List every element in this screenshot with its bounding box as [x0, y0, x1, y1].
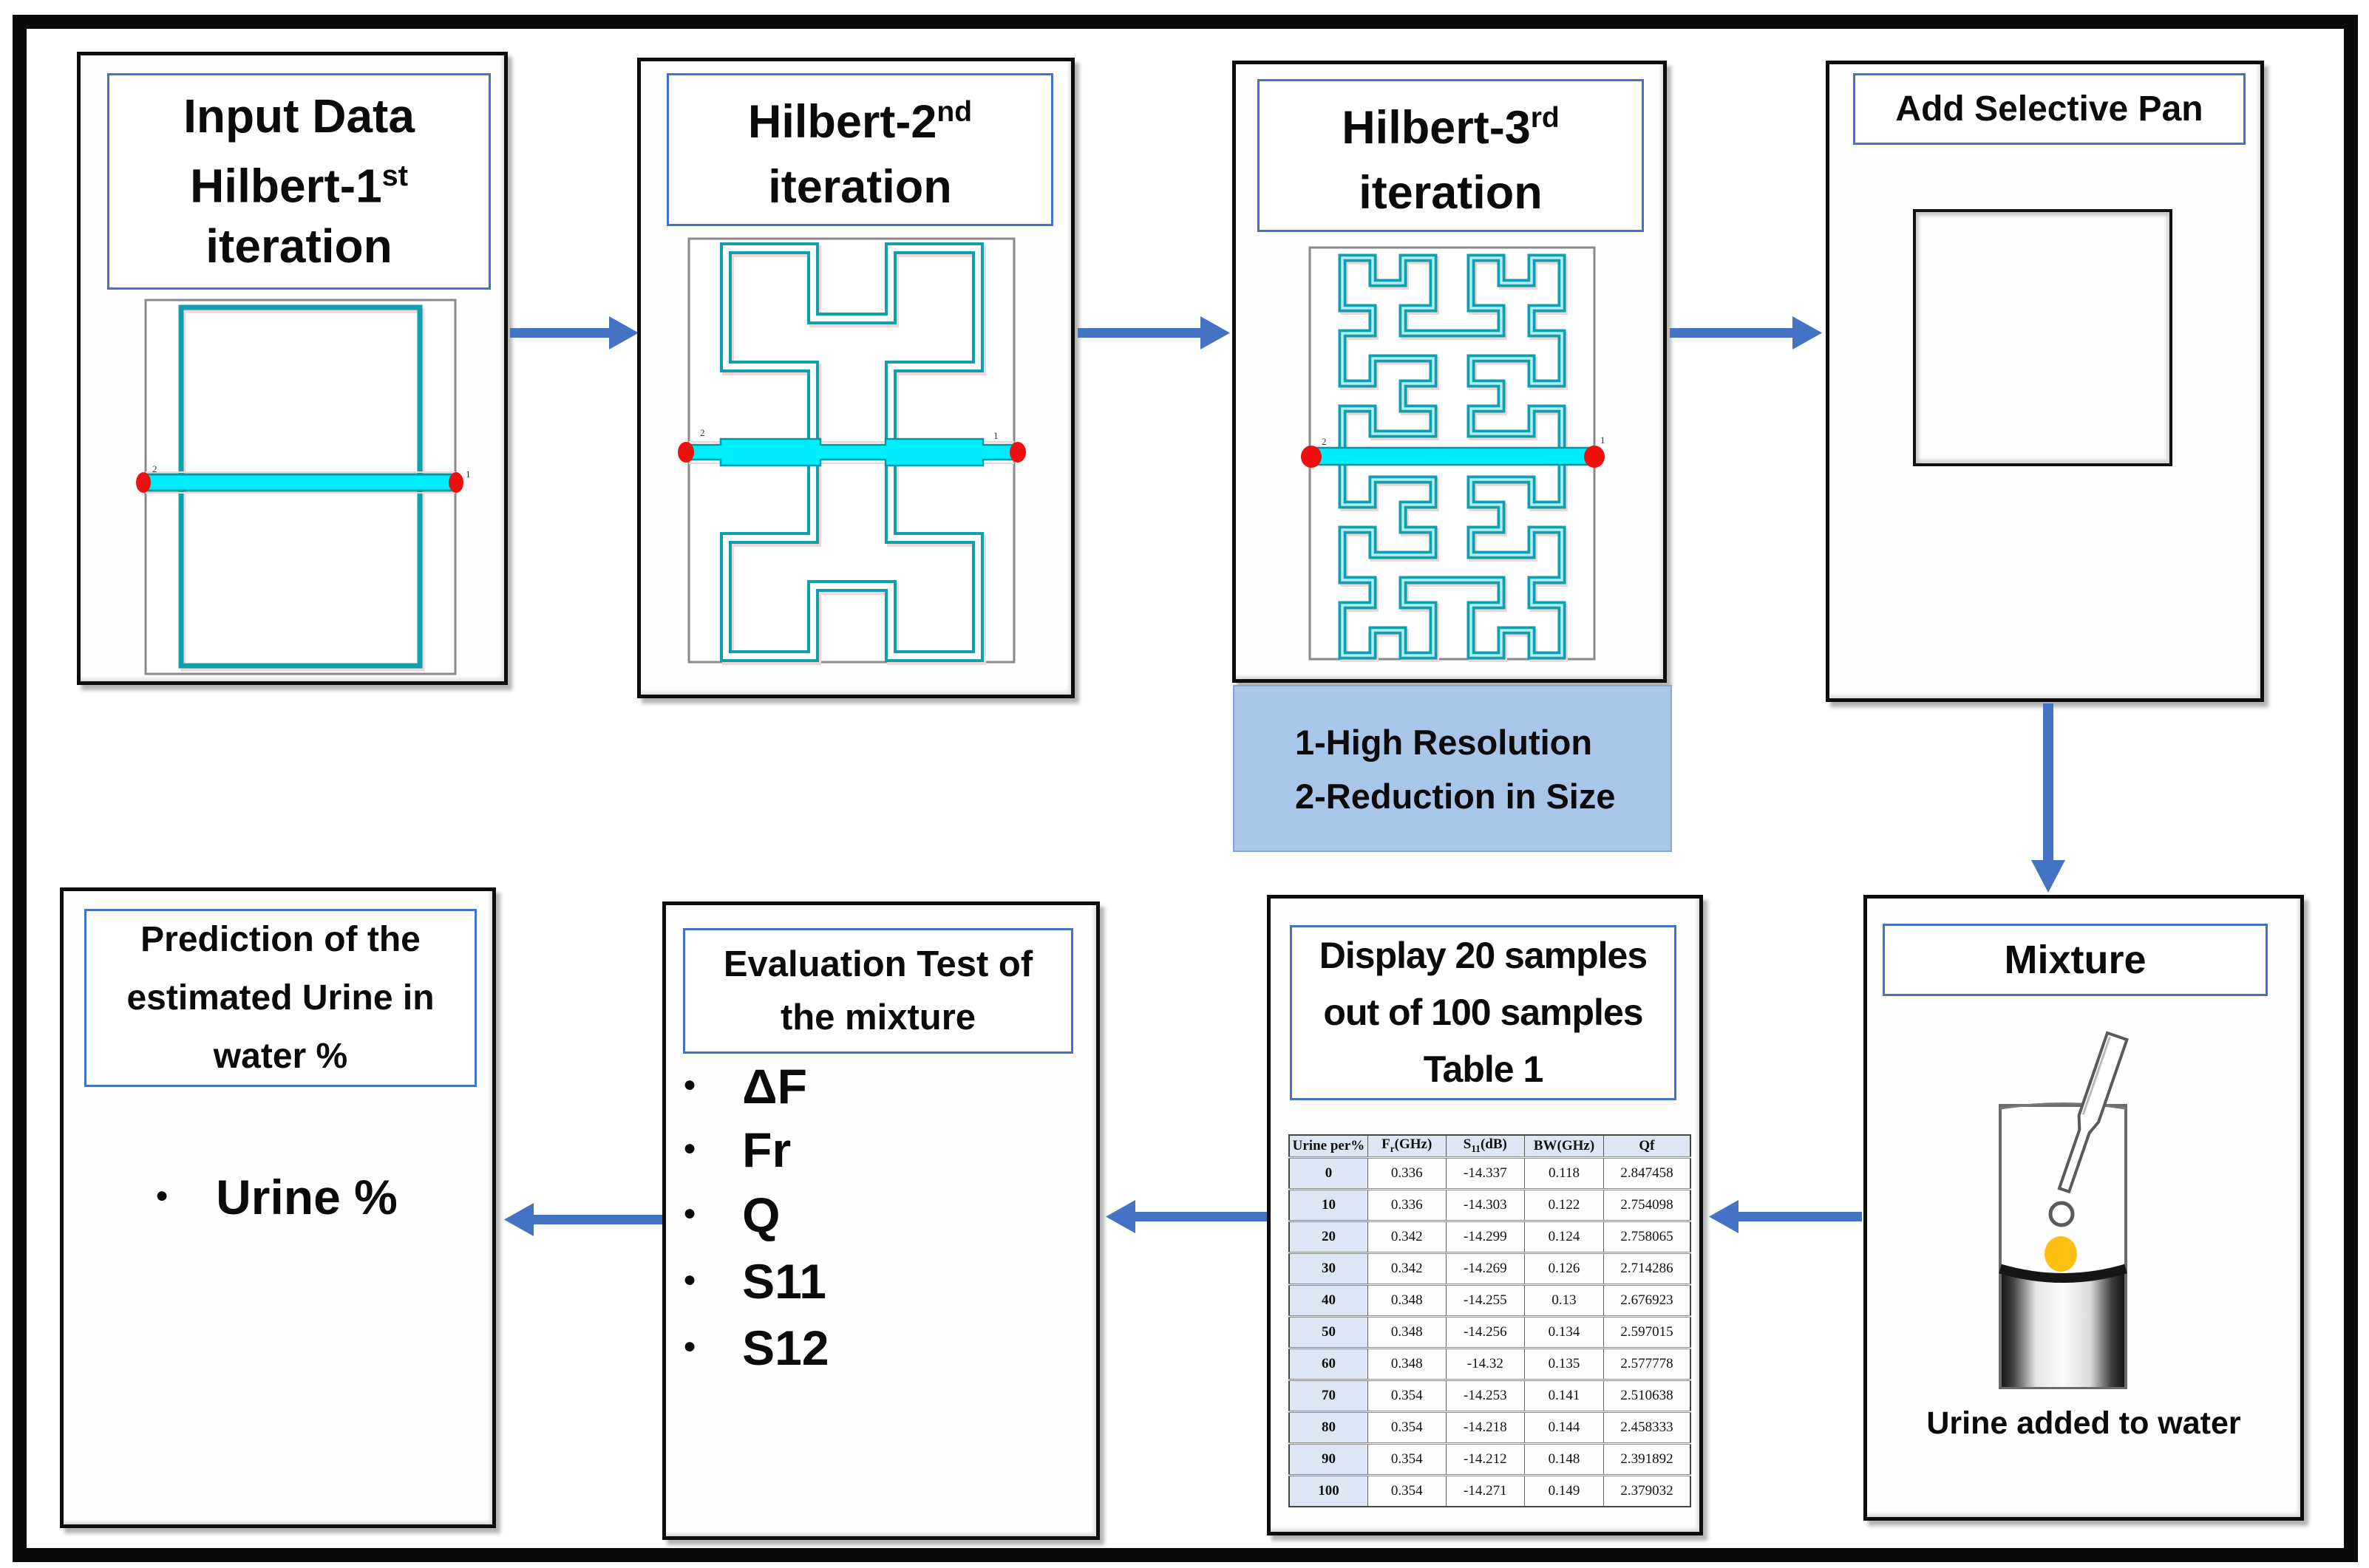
svg-text:1: 1 — [1600, 434, 1605, 446]
svg-text:2: 2 — [700, 427, 705, 438]
svg-text:2: 2 — [152, 463, 157, 474]
svg-text:1: 1 — [466, 468, 471, 480]
svg-text:1: 1 — [993, 430, 999, 441]
svg-text:2: 2 — [1322, 436, 1327, 447]
